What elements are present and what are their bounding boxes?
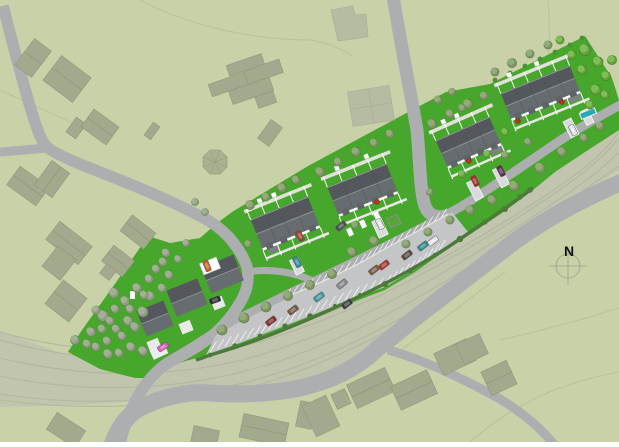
svg-text:N: N <box>564 243 574 259</box>
